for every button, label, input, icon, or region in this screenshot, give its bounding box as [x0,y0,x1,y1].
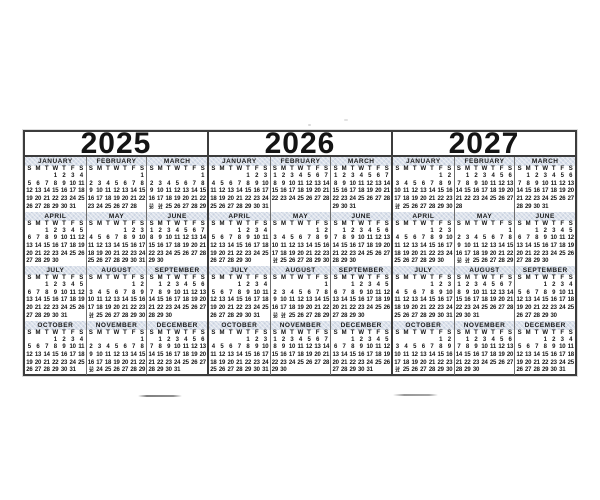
day-cell: 17 [252,297,261,305]
day-cell: 20 [296,251,305,259]
day-cell: 9 [340,181,349,189]
day-cell [489,204,498,212]
day-cell: 21 [340,305,349,313]
day-cell: 25 [181,305,190,313]
day-cell: 29 [436,367,445,375]
day-cell: 15 [235,297,244,305]
day-cell: 30 [60,367,69,375]
day-cell: 28 [382,196,391,204]
day-cell: 30 [51,258,60,266]
week-row: 1 [455,228,515,236]
day-cell: 3 [95,344,104,352]
week-row: 891011121314 [331,181,391,189]
weekday-header-row: SMTWTFS [331,166,391,173]
weekday-label: S [147,166,156,173]
day-cell: 28 [112,258,121,266]
day-cell: 25 [393,258,402,266]
weekday-label: S [382,166,391,173]
day-cell: 14 [497,243,506,251]
day-cell [209,228,218,236]
day-cell: 12 [402,297,411,305]
weekday-label: F [252,330,261,337]
day-cell: 25 [374,360,383,368]
week-row: 12131415161718 [209,297,270,305]
day-cell: 31 [472,313,481,321]
day-cell: 25 [77,360,86,368]
day-cell: 8 [313,235,322,243]
day-cell: 13 [524,352,533,360]
weekday-label: F [497,166,506,173]
day-cell: 25 [209,367,218,375]
weekday-label: F [252,221,261,228]
week-row: 123 [209,337,270,345]
weekday-label: T [164,275,173,282]
day-cell: 18 [393,251,402,259]
day-cell: 30 [51,313,60,321]
week-row: 16171819202122 [271,305,331,313]
day-cell: 20 [410,305,419,313]
day-cell: 17 [60,297,69,305]
weekday-label: F [129,166,138,173]
day-cell: 24 [558,305,567,313]
day-cell [480,367,489,375]
day-cell [393,282,402,290]
day-cell: 20 [313,352,322,360]
weekday-label: T [60,166,69,173]
weekday-label: S [25,221,34,228]
day-cell [455,173,464,181]
weekday-header-row: SMTWTFS [147,221,207,228]
day-cell: 7 [419,235,428,243]
weekday-label: F [252,166,261,173]
weekday-label: S [25,330,34,337]
weekday-label: W [357,330,366,337]
day-cell: 16 [357,352,366,360]
day-cell: 24 [261,196,270,204]
day-cell: 30 [445,367,454,375]
day-cell: 16 [51,243,60,251]
weekday-label: S [506,275,515,282]
day-cell: 7 [313,290,322,298]
day-cell: 1 [244,337,253,345]
day-cell: 13 [419,188,428,196]
day-cell: 25 [279,258,288,266]
day-cell: 22 [42,251,51,259]
day-cell: 8 [244,344,253,352]
day-cell: 17 [480,188,489,196]
day-cell: 14 [322,181,331,189]
month-may: MAYSMTWTFS123456789101112131415161718192… [454,212,515,267]
day-cell [455,337,464,345]
week-row: 12131415161718 [515,297,575,305]
day-cell: 30 [357,313,366,321]
day-cell: 25 [164,204,173,212]
day-cell [68,313,77,321]
day-cell: 28 [331,258,340,266]
day-cell: 6 [181,181,190,189]
day-cell: 24 [365,360,374,368]
weekday-header-row: SMTWTFS [25,275,86,282]
day-cell: 4 [374,282,383,290]
day-cell: 9 [244,235,253,243]
day-cell [190,313,199,321]
day-cell: 2330 [455,258,464,266]
day-cell: 27 [25,313,34,321]
weekday-label: F [374,330,383,337]
day-cell: 22 [138,196,147,204]
day-cell [112,173,121,181]
day-cell: 10 [68,181,77,189]
month-name: SEPTEMBER [331,266,391,275]
day-cell: 13 [218,243,227,251]
week-row: 45678910 [393,290,454,298]
weekday-label: M [279,330,288,337]
weekday-label: W [51,221,60,228]
day-cell: 10 [558,290,567,298]
weekday-label: F [313,166,322,173]
day-cell: 9 [357,290,366,298]
day-cell: 18 [393,305,402,313]
weekday-label: S [445,275,454,282]
week-row: 1234567 [271,337,331,345]
week-row: 1234 [25,337,86,345]
day-cell: 9 [164,344,173,352]
day-cell: 2 [252,337,261,345]
day-cell: 16 [271,305,280,313]
day-cell: 23 [279,196,288,204]
day-cell: 23 [472,196,481,204]
month-name: JUNE [147,212,207,221]
day-cell: 28 [235,204,244,212]
day-cell: 14 [235,188,244,196]
day-cell: 19 [410,196,419,204]
weekday-label: S [566,275,575,282]
weekday-label: T [164,221,173,228]
day-cell [95,228,104,236]
week-row: 10111213141516 [393,352,454,360]
day-cell: 24 [173,305,182,313]
day-cell: 17 [95,196,104,204]
weekday-header-row: SMTWTFS [331,330,391,337]
day-cell: 15 [541,297,550,305]
day-cell: 20 [181,196,190,204]
day-cell [68,258,77,266]
day-cell [365,313,374,321]
day-cell: 7 [532,344,541,352]
day-cell: 1 [541,282,550,290]
day-cell: 8 [348,290,357,298]
day-cell [382,204,391,212]
day-cell: 19 [558,188,567,196]
day-cell [419,282,428,290]
day-cell: 23 [436,251,445,259]
weekday-label: S [515,275,524,282]
week-row: 21222324252627 [455,360,515,368]
week-row: 13141516171819 [25,243,86,251]
weekday-label: W [51,166,60,173]
week-row: 252627282930 [393,258,454,266]
day-cell: 28 [340,313,349,321]
week-row: 20212223242526 [331,360,391,368]
week-row: 16171819202122 [147,196,207,204]
week-row: 6789101112 [25,235,86,243]
weekday-label: M [340,330,349,337]
day-cell: 11 [95,297,104,305]
week-row: 282930 [331,258,391,266]
day-cell: 12 [218,188,227,196]
weekday-header-row: SMTWTFS [147,275,207,282]
day-cell: 20 [104,251,113,259]
day-cell: 1 [271,173,280,181]
week-row: 22232425262728 [147,251,207,259]
day-cell: 1 [436,173,445,181]
day-cell: 27 [331,313,340,321]
day-cell: 12 [112,352,121,360]
day-cell: 27 [226,204,235,212]
day-cell: 2 [472,337,481,345]
day-cell: 2 [164,282,173,290]
day-cell [322,367,331,375]
day-cell: 11 [181,290,190,298]
weekday-label: S [515,221,524,228]
week-row: 21222324252627 [147,360,207,368]
week-row: 1234567 [331,173,391,181]
day-cell: 9 [244,290,253,298]
day-cell: 2 [244,282,253,290]
day-cell [365,258,374,266]
day-cell: 4 [296,337,305,345]
day-cell: 10 [463,243,472,251]
week-row: 20212223242526 [25,305,86,313]
day-cell: 12 [515,352,524,360]
day-cell [147,337,156,345]
day-cell: 15 [532,243,541,251]
day-cell: 29 [235,258,244,266]
day-cell: 21 [322,188,331,196]
day-cell: 8 [436,344,445,352]
day-cell: 16 [348,243,357,251]
day-cell: 18 [357,188,366,196]
day-cell: 21 [515,196,524,204]
weekday-label: T [60,221,69,228]
day-cell [549,204,558,212]
day-cell: 27 [524,367,533,375]
day-cell: 8 [428,290,437,298]
day-cell: 18 [296,352,305,360]
day-cell: 30 [436,258,445,266]
day-cell: 27 [34,367,43,375]
day-cell: 6 [305,290,314,298]
week-row: 12 [271,228,331,236]
weekday-label: M [279,275,288,282]
weekday-label: W [419,275,428,282]
day-cell: 14 [305,243,314,251]
weekday-label: T [472,330,481,337]
day-cell [60,258,69,266]
weekday-label: F [374,166,383,173]
day-cell: 24 [164,251,173,259]
day-cell [104,228,113,236]
week-row: 9101112131415 [87,188,147,196]
day-cell: 11 [104,188,113,196]
week-row: 22232425262728 [455,305,515,313]
weekday-label: T [489,166,498,173]
day-cell: 26 [515,313,524,321]
day-cell: 10 [156,188,165,196]
weekday-label: F [190,221,199,228]
day-cell [147,173,156,181]
day-cell [393,228,402,236]
day-cell: 22 [235,251,244,259]
weekday-label: M [402,275,411,282]
day-cell [198,367,207,375]
day-cell: 26 [25,204,34,212]
day-cell: 3 [279,290,288,298]
day-cell: 2 [87,344,96,352]
week-row: 25262728293031 [209,204,270,212]
day-cell: 9 [279,344,288,352]
day-cell: 10 [60,290,69,298]
day-cell: 7 [190,181,199,189]
day-cell: 12 [374,235,383,243]
day-cell [218,173,227,181]
week-row: 2728293031 [331,367,391,375]
day-cell: 1 [244,173,253,181]
day-cell: 20 [313,188,322,196]
day-cell [218,282,227,290]
day-cell: 15 [331,188,340,196]
day-cell: 5 [305,173,314,181]
week-row: 123456 [455,173,515,181]
day-cell: 30 [541,258,550,266]
day-cell: 26 [480,258,489,266]
day-cell: 14 [34,243,43,251]
day-cell: 11 [558,235,567,243]
day-cell [497,204,506,212]
weekday-label: F [374,275,383,282]
day-cell: 15 [463,352,472,360]
weekday-label: T [244,275,253,282]
day-cell: 26 [218,204,227,212]
day-cell: 3 [393,344,402,352]
day-cell: 18 [374,352,383,360]
day-cell: 7 [419,290,428,298]
day-cell: 2 [357,337,366,345]
day-cell: 21 [112,251,121,259]
weekday-header-row: SMTWTFS [271,330,331,337]
day-cell: 26 [190,360,199,368]
week-row: 1234 [515,282,575,290]
day-cell [279,204,288,212]
day-cell: 31 [252,313,261,321]
weekday-label: W [541,330,550,337]
day-cell: 11 [87,243,96,251]
weekday-header-row: SMTWTFS [87,275,147,282]
day-cell: 27 [121,204,130,212]
week-row: 123 [393,282,454,290]
day-cell: 21 [34,251,43,259]
day-cell: 27 [121,367,130,375]
day-cell: 25 [374,305,383,313]
day-cell: 24 [60,305,69,313]
day-cell: 23 [60,196,69,204]
day-cell: 12 [209,243,218,251]
day-cell [532,337,541,345]
day-cell [455,228,464,236]
day-cell: 18 [104,360,113,368]
day-cell: 19 [25,360,34,368]
day-cell: 2431 [393,367,402,375]
week-row: 19202122232425 [25,196,86,204]
day-cell: 6 [506,337,515,345]
day-cell: 7 [226,235,235,243]
day-cell: 10 [288,344,297,352]
week-row: 9101112131415 [87,352,147,360]
day-cell: 21 [121,305,130,313]
month-march: MARCHSMTWTFS1234567891011121314151617181… [514,157,575,212]
day-cell: 4 [489,337,498,345]
day-cell: 26 [95,258,104,266]
weekday-label: M [524,221,533,228]
stacked-dates: 2330 [88,368,94,373]
weekday-label: M [279,166,288,173]
day-cell: 21 [382,188,391,196]
day-cell: 9 [87,188,96,196]
day-cell [515,173,524,181]
day-cell: 24 [549,251,558,259]
day-cell [472,204,481,212]
week-row: 15161718192021 [331,188,391,196]
day-cell: 6 [104,235,113,243]
day-cell: 14 [42,188,51,196]
day-cell: 8 [156,344,165,352]
day-cell [296,228,305,236]
weekday-label: S [77,275,86,282]
weekday-label: W [296,275,305,282]
day-cell: 9 [156,235,165,243]
day-cell: 24 [252,251,261,259]
day-cell: 3 [463,235,472,243]
weekday-label: F [129,221,138,228]
day-cell: 26 [382,360,391,368]
day-cell: 2 [279,337,288,345]
weekday-label: W [296,221,305,228]
day-cell: 19 [305,352,314,360]
weekday-label: T [226,275,235,282]
day-cell: 25 [68,305,77,313]
day-cell [218,337,227,345]
weekday-label: F [129,330,138,337]
weekday-label: S [198,166,207,173]
weekday-label: F [497,275,506,282]
week-row: 19202122232425 [209,305,270,313]
weekday-label: M [402,330,411,337]
weekday-label: S [393,330,402,337]
day-cell: 22 [532,251,541,259]
day-cell: 14 [235,352,244,360]
day-cell: 27 [566,196,575,204]
day-cell: 5 [190,337,199,345]
weekday-label: T [288,275,297,282]
day-cell [305,228,314,236]
day-cell: 13 [497,290,506,298]
day-cell [463,228,472,236]
day-cell: 3 [445,282,454,290]
day-cell: 14 [313,297,322,305]
day-cell: 4 [68,282,77,290]
day-cell: 5 [305,337,314,345]
weekday-label: T [288,166,297,173]
